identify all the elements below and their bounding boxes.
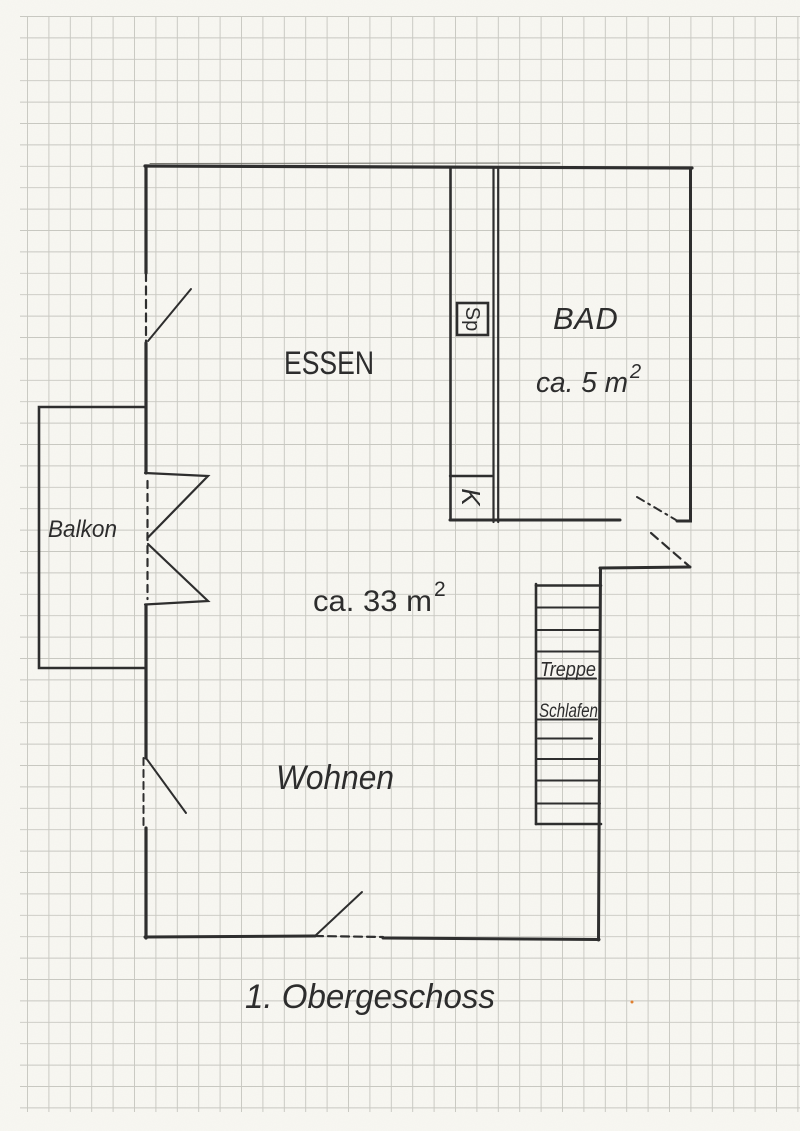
svg-text:Sp: Sp — [461, 307, 483, 331]
svg-text:1. Obergeschoss: 1. Obergeschoss — [245, 978, 495, 1016]
svg-text:BAD: BAD — [553, 301, 618, 336]
svg-text:ca. 5 m: ca. 5 m — [536, 367, 628, 399]
svg-text:Balkon: Balkon — [48, 516, 117, 543]
svg-text:2: 2 — [434, 578, 446, 601]
svg-text:Treppe: Treppe — [540, 659, 596, 681]
svg-text:Wohnen: Wohnen — [276, 759, 394, 797]
svg-text:2: 2 — [629, 361, 641, 383]
svg-text:K: K — [456, 488, 486, 507]
svg-text:Schlafen: Schlafen — [539, 701, 598, 722]
svg-text:ESSEN: ESSEN — [284, 345, 374, 381]
svg-text:ca. 33 m: ca. 33 m — [313, 585, 432, 618]
